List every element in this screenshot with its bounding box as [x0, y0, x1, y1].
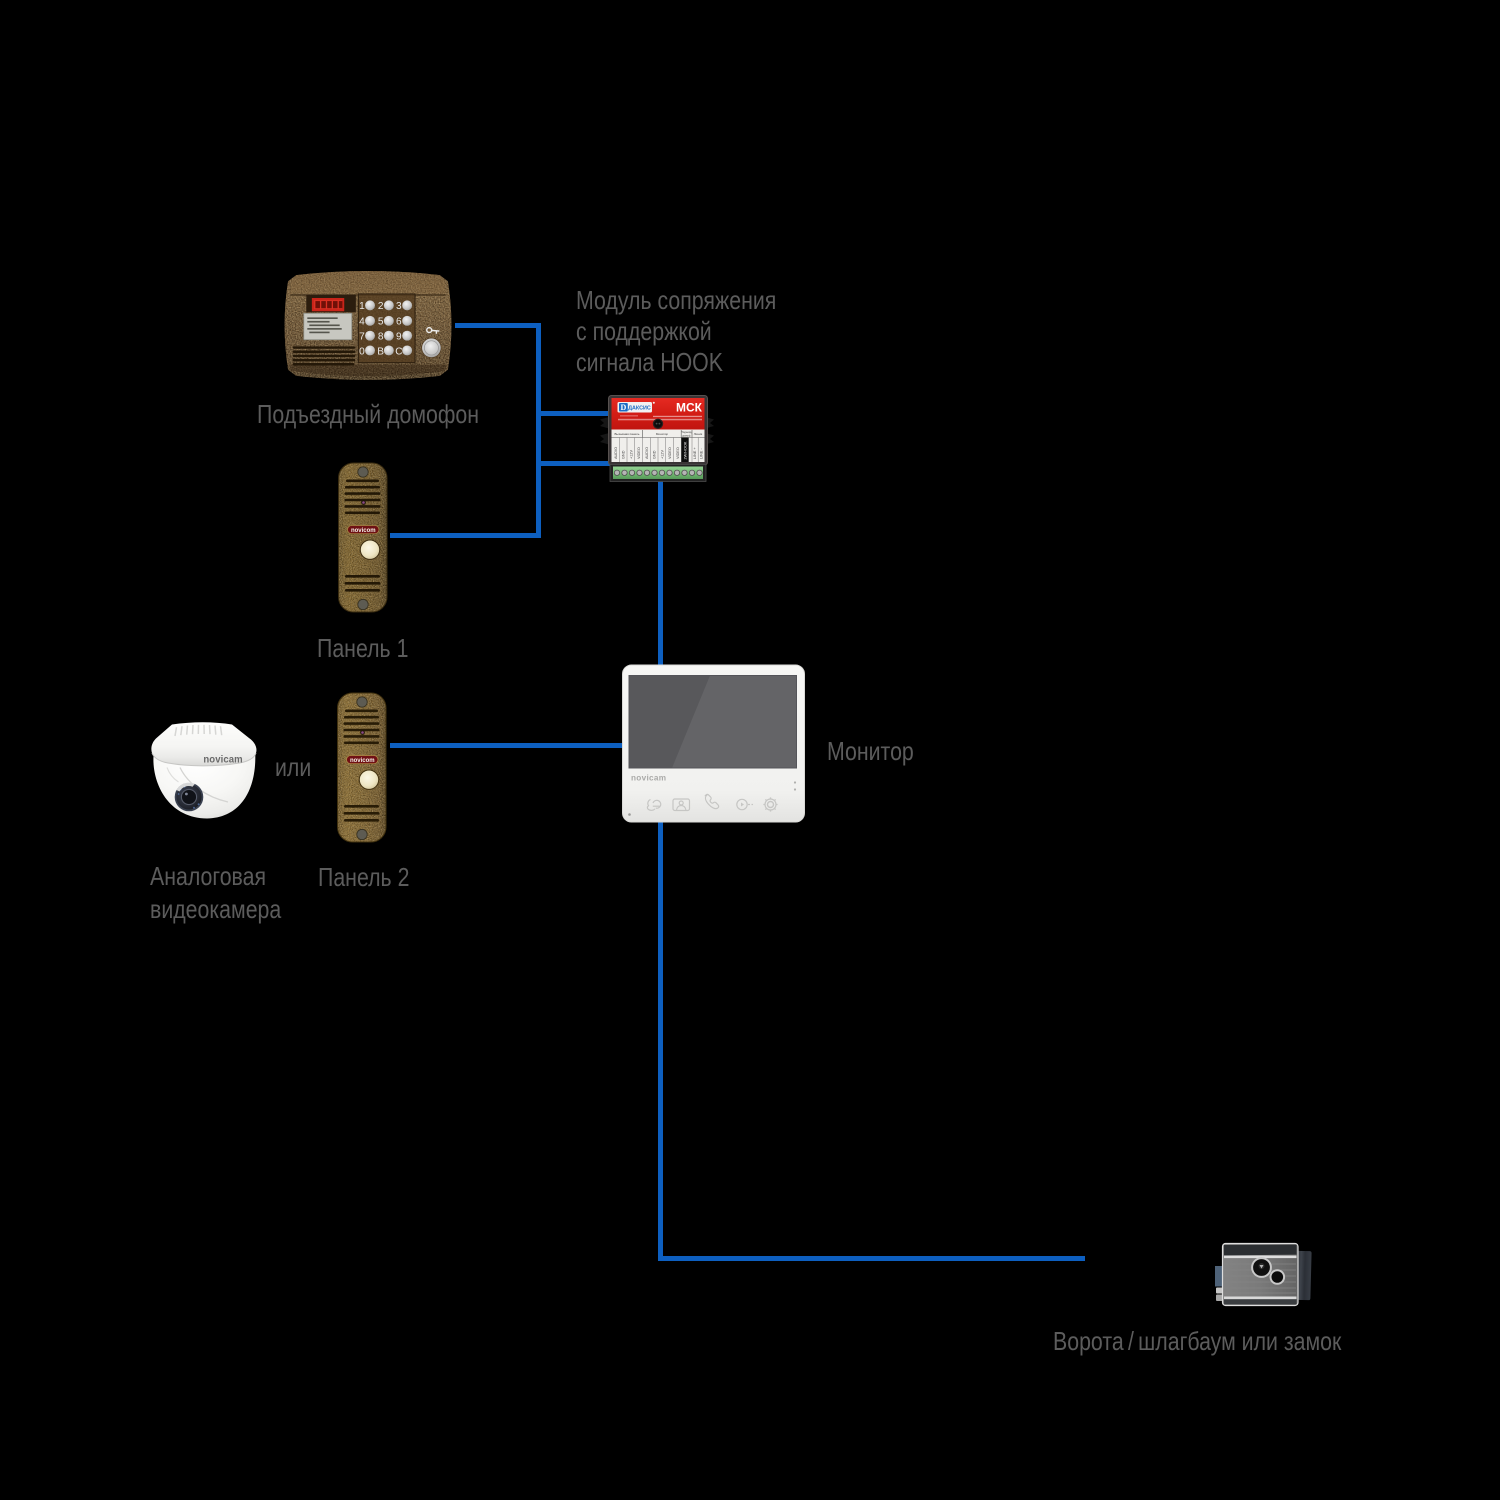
svg-text:+12V: +12V: [629, 450, 633, 459]
svg-text:novicom: novicom: [351, 528, 376, 534]
svg-text:МСК: МСК: [676, 402, 703, 415]
svg-text:1: 1: [359, 301, 365, 312]
svg-text:9: 9: [396, 332, 402, 343]
svg-text:Линия: Линия: [694, 432, 703, 436]
svg-text:D: D: [621, 403, 627, 412]
svg-text:3: 3: [396, 301, 402, 312]
svg-text:novicam: novicam: [631, 774, 666, 783]
svg-text:2: 2: [378, 301, 384, 312]
svg-text:5: 5: [378, 317, 384, 328]
svg-text:LINE -: LINE -: [700, 448, 704, 459]
svg-text:7: 7: [359, 332, 365, 343]
svg-text:VIDEO: VIDEO: [637, 447, 641, 459]
svg-text:novicom: novicom: [350, 758, 375, 764]
svg-text:AUDIO: AUDIO: [614, 447, 618, 459]
svg-text:VIDEO: VIDEO: [676, 447, 680, 459]
svg-text:AUDIO: AUDIO: [645, 447, 649, 459]
svg-text:C: C: [395, 346, 402, 357]
svg-text:GND: GND: [653, 450, 657, 459]
svg-text:6: 6: [396, 317, 402, 328]
svg-text:VIDEO: VIDEO: [668, 447, 672, 459]
svg-text:8: 8: [378, 332, 384, 343]
svg-text:Монитор: Монитор: [656, 432, 669, 436]
svg-text:novicam: novicam: [203, 754, 243, 765]
svg-text:0: 0: [359, 346, 365, 357]
svg-text:LINE +: LINE +: [693, 447, 697, 459]
svg-text:+12V: +12V: [660, 450, 664, 459]
svg-text:ДАКСИС: ДАКСИС: [628, 406, 651, 412]
svg-text:домоф.: домоф.: [682, 433, 691, 437]
svg-text:Вызывная панель: Вызывная панель: [615, 432, 640, 436]
svg-text:B: B: [377, 346, 384, 357]
svg-text:2W/HOOK: 2W/HOOK: [684, 441, 688, 459]
svg-text:GND: GND: [622, 450, 626, 459]
svg-text:4: 4: [359, 317, 365, 328]
